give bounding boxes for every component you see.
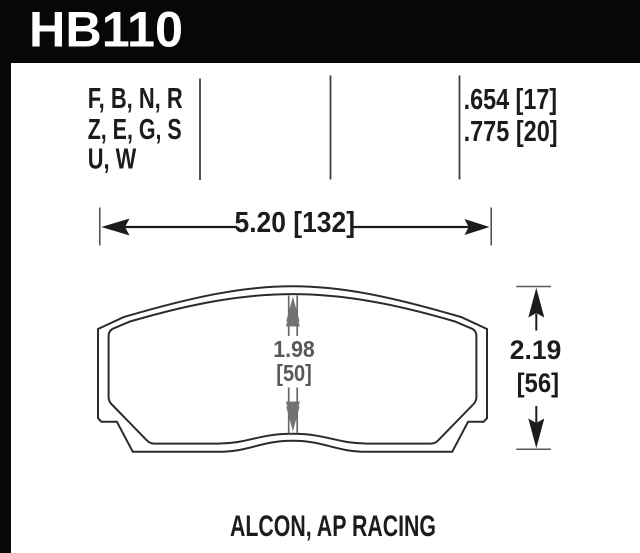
svg-text:.775 [20]: .775 [20] xyxy=(464,116,558,148)
svg-text:HB110: HB110 xyxy=(29,2,183,58)
svg-text:F, B, N, R: F, B, N, R xyxy=(88,83,183,115)
svg-text:5.20 [132]: 5.20 [132] xyxy=(235,207,356,239)
svg-text:ALCON, AP RACING: ALCON, AP RACING xyxy=(230,510,436,543)
svg-text:[50]: [50] xyxy=(276,360,312,386)
svg-text:Z, E, G, S: Z, E, G, S xyxy=(88,114,182,146)
svg-text:2.19: 2.19 xyxy=(510,335,562,365)
svg-text:U, W: U, W xyxy=(88,143,137,175)
svg-text:.654 [17]: .654 [17] xyxy=(464,84,557,116)
svg-text:[56]: [56] xyxy=(517,368,560,398)
svg-text:1.98: 1.98 xyxy=(273,336,315,362)
